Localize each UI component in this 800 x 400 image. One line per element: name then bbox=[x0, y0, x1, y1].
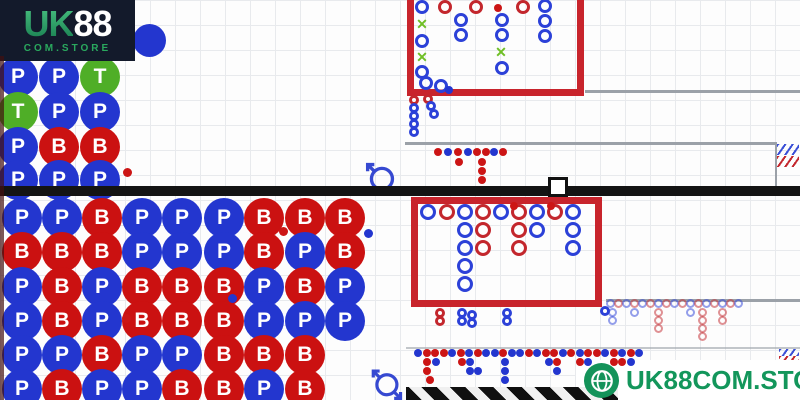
hatch-marks-top-red bbox=[777, 156, 799, 167]
player-dot bbox=[466, 358, 474, 366]
banker-dot bbox=[423, 349, 431, 357]
bead-P: P bbox=[244, 369, 284, 400]
globe-icon bbox=[584, 363, 619, 398]
bead-P: P bbox=[325, 301, 365, 341]
bead-P: P bbox=[80, 92, 120, 132]
bead-B: B bbox=[285, 267, 325, 307]
bead-P: P bbox=[122, 335, 162, 375]
bead-P: P bbox=[325, 267, 365, 307]
player-ring bbox=[426, 101, 436, 111]
bead-P: P bbox=[204, 232, 244, 272]
bead-B: B bbox=[82, 198, 122, 238]
player-dot bbox=[635, 349, 643, 357]
bead-B: B bbox=[42, 301, 82, 341]
banker-dot bbox=[567, 349, 575, 357]
logo-88-text: 88 bbox=[73, 3, 111, 44]
banker-dot bbox=[434, 148, 442, 156]
bead-P: P bbox=[285, 301, 325, 341]
bead-B: B bbox=[244, 232, 284, 272]
bead-P: P bbox=[42, 335, 82, 375]
bead-P: P bbox=[122, 232, 162, 272]
banker-ring bbox=[698, 308, 707, 317]
banker-ring bbox=[698, 316, 707, 325]
player-ring bbox=[608, 308, 617, 317]
bead-P: P bbox=[39, 57, 79, 97]
bead-B: B bbox=[2, 232, 42, 272]
bead-P: P bbox=[82, 267, 122, 307]
bead-T: T bbox=[80, 57, 120, 97]
logo-uk-text: UK bbox=[23, 3, 73, 44]
banker-ring bbox=[698, 324, 707, 333]
bead-B: B bbox=[244, 335, 284, 375]
hatch-marks-top-blue bbox=[777, 144, 799, 155]
watermark-text: UK88COM.STORE bbox=[626, 365, 800, 396]
player-dot bbox=[465, 349, 473, 357]
screen-edge-strip bbox=[0, 56, 4, 400]
bead-T: T bbox=[0, 92, 38, 132]
player-dot bbox=[533, 349, 541, 357]
player-ring bbox=[608, 316, 617, 325]
bead-B: B bbox=[285, 198, 325, 238]
banker-dot bbox=[584, 349, 592, 357]
bead-P: P bbox=[42, 198, 82, 238]
banker-dot bbox=[542, 349, 550, 357]
banker-ring bbox=[654, 324, 663, 333]
uk88-logo: UK88 COM.STORE bbox=[0, 0, 135, 61]
bead-P: P bbox=[2, 301, 42, 341]
player-dot bbox=[601, 349, 609, 357]
banker-dot bbox=[474, 349, 482, 357]
banker-dot bbox=[123, 168, 132, 177]
player-ring bbox=[457, 308, 467, 318]
player-ring bbox=[429, 109, 439, 119]
player-ring bbox=[467, 310, 477, 320]
banker-dot bbox=[525, 349, 533, 357]
player-dot bbox=[464, 148, 472, 156]
bead-B: B bbox=[204, 335, 244, 375]
player-dot bbox=[545, 358, 553, 366]
banker-dot bbox=[423, 358, 431, 366]
bead-B: B bbox=[162, 267, 202, 307]
player-ring bbox=[502, 316, 512, 326]
player-ring bbox=[457, 316, 467, 326]
bead-P: P bbox=[244, 267, 284, 307]
bead-P: P bbox=[2, 335, 42, 375]
banker-dot bbox=[499, 349, 507, 357]
banker-ring bbox=[654, 308, 663, 317]
banker-dot bbox=[440, 349, 448, 357]
player-dot bbox=[501, 376, 509, 384]
player-dot bbox=[559, 349, 567, 357]
player-dot bbox=[501, 358, 509, 366]
bead-P: P bbox=[122, 198, 162, 238]
player-dot bbox=[228, 294, 237, 303]
player-ring bbox=[409, 111, 419, 121]
bead-P: P bbox=[122, 369, 162, 400]
bead-B: B bbox=[82, 335, 122, 375]
banker-dot bbox=[478, 167, 486, 175]
player-ring bbox=[409, 127, 419, 137]
player-dot bbox=[553, 367, 561, 375]
player-dot bbox=[444, 148, 452, 156]
divider-drag-handle[interactable] bbox=[548, 177, 568, 197]
separator-line-top-right bbox=[585, 90, 800, 93]
bead-P: P bbox=[204, 198, 244, 238]
player-ring bbox=[467, 318, 477, 328]
bead-P: P bbox=[39, 92, 79, 132]
bead-B: B bbox=[82, 232, 122, 272]
bead-P: P bbox=[244, 301, 284, 341]
banker-ring bbox=[435, 308, 445, 318]
banker-dot bbox=[499, 148, 507, 156]
player-dot bbox=[508, 349, 516, 357]
bead-B: B bbox=[325, 198, 365, 238]
bead-P: P bbox=[82, 369, 122, 400]
player-ring bbox=[600, 306, 610, 316]
player-dot bbox=[482, 349, 490, 357]
banker-ring bbox=[409, 95, 419, 105]
banker-dot bbox=[627, 349, 635, 357]
hatch-marks-bottom-blue bbox=[779, 349, 799, 356]
player-dot bbox=[576, 349, 584, 357]
banker-dot bbox=[454, 148, 462, 156]
banker-dot bbox=[457, 349, 465, 357]
bead-B: B bbox=[325, 232, 365, 272]
logo-store-text: COM.STORE bbox=[24, 43, 111, 54]
banker-dot bbox=[550, 349, 558, 357]
banker-dot bbox=[482, 148, 490, 156]
player-dot bbox=[466, 367, 474, 375]
bead-P: P bbox=[162, 335, 202, 375]
banker-dot bbox=[426, 376, 434, 384]
banker-dot bbox=[279, 227, 288, 236]
banker-ring bbox=[654, 316, 663, 325]
banker-ring bbox=[718, 316, 727, 325]
logo-wordmark: UK88 bbox=[23, 7, 111, 41]
player-ring bbox=[630, 308, 639, 317]
separator-line-right-low bbox=[606, 299, 800, 302]
separator-line-bottom bbox=[406, 347, 800, 349]
bead-P: P bbox=[0, 127, 38, 167]
bead-P: P bbox=[285, 232, 325, 272]
player-dot bbox=[414, 349, 422, 357]
player-dot bbox=[516, 349, 524, 357]
bead-B: B bbox=[204, 301, 244, 341]
player-bead-partial bbox=[133, 24, 166, 57]
banker-dot bbox=[455, 158, 463, 166]
banker-ring bbox=[718, 308, 727, 317]
banker-dot bbox=[122, 314, 131, 323]
player-dot bbox=[432, 358, 440, 366]
bead-P: P bbox=[2, 369, 42, 400]
bead-B: B bbox=[162, 301, 202, 341]
banker-ring bbox=[698, 332, 707, 341]
bead-P: P bbox=[2, 198, 42, 238]
player-dot bbox=[618, 349, 626, 357]
split-divider-bar bbox=[0, 186, 800, 196]
bead-B: B bbox=[122, 267, 162, 307]
separator-line-mid bbox=[405, 142, 775, 145]
bead-B: B bbox=[285, 369, 325, 400]
highlight-box-top bbox=[407, 0, 584, 96]
banker-dot bbox=[478, 176, 486, 184]
player-dot bbox=[448, 349, 456, 357]
banker-dot bbox=[553, 358, 561, 366]
bead-P: P bbox=[162, 198, 202, 238]
bead-B: B bbox=[122, 301, 162, 341]
player-ring bbox=[502, 308, 512, 318]
player-ring bbox=[409, 103, 419, 113]
baccarat-roadmap-screen: PPTTPPPBBPPPPPBPPPBBBBBBPPPBPBPBPBBBPBPP… bbox=[0, 0, 800, 400]
bead-P: P bbox=[0, 57, 38, 97]
bead-B: B bbox=[204, 267, 244, 307]
player-ring bbox=[409, 119, 419, 129]
bead-B: B bbox=[162, 369, 202, 400]
banker-dot bbox=[458, 358, 466, 366]
banker-dot bbox=[610, 349, 618, 357]
bead-P: P bbox=[82, 301, 122, 341]
swap-icon[interactable] bbox=[366, 362, 406, 400]
bead-B: B bbox=[42, 369, 82, 400]
player-dot bbox=[474, 367, 482, 375]
bead-B: B bbox=[42, 232, 82, 272]
banker-dot bbox=[431, 349, 439, 357]
player-dot bbox=[364, 229, 373, 238]
bead-B: B bbox=[39, 127, 79, 167]
bead-B: B bbox=[204, 369, 244, 400]
highlight-box-bottom bbox=[411, 197, 602, 307]
banker-dot bbox=[423, 367, 431, 375]
bead-B: B bbox=[285, 335, 325, 375]
banker-dot bbox=[478, 158, 486, 166]
bead-B: B bbox=[244, 198, 284, 238]
bead-P: P bbox=[2, 267, 42, 307]
player-dot bbox=[501, 367, 509, 375]
bead-B: B bbox=[80, 127, 120, 167]
player-ring bbox=[686, 308, 695, 317]
bead-P: P bbox=[162, 232, 202, 272]
banker-dot bbox=[473, 148, 481, 156]
player-dot bbox=[490, 148, 498, 156]
banker-dot bbox=[593, 349, 601, 357]
player-dot bbox=[491, 349, 499, 357]
bead-B: B bbox=[42, 267, 82, 307]
banker-ring bbox=[435, 316, 445, 326]
